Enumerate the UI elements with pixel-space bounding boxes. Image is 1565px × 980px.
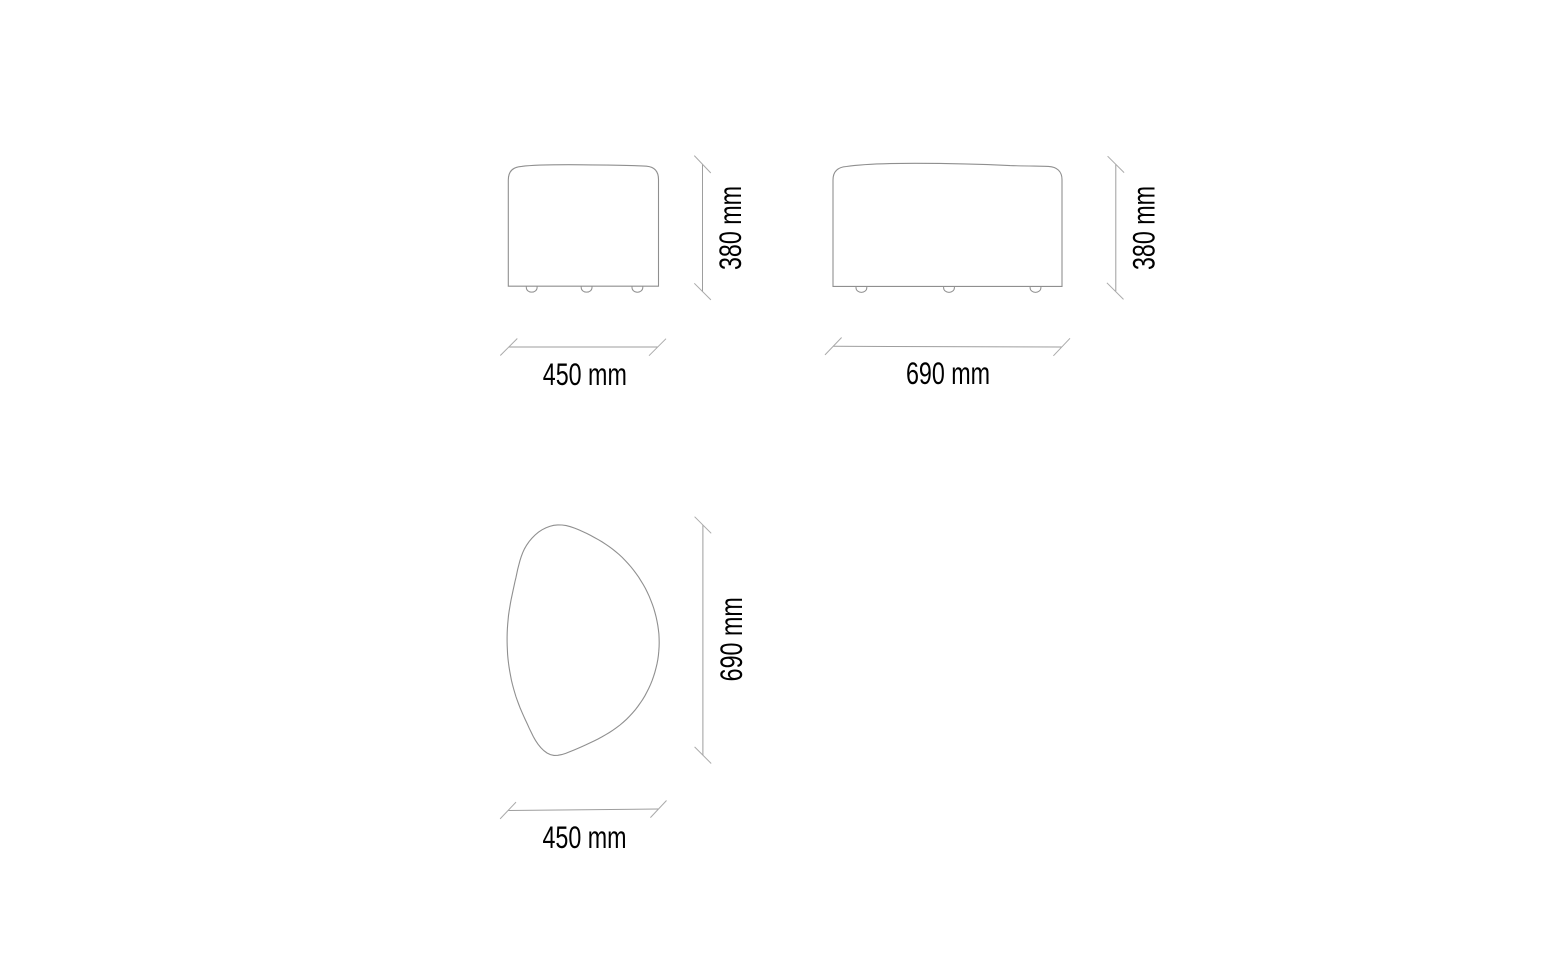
svg-text:450 mm: 450 mm bbox=[543, 357, 627, 392]
svg-text:380 mm: 380 mm bbox=[1126, 186, 1161, 270]
svg-text:690 mm: 690 mm bbox=[906, 356, 990, 391]
svg-text:690 mm: 690 mm bbox=[714, 597, 749, 681]
svg-text:450 mm: 450 mm bbox=[542, 820, 626, 855]
svg-text:380 mm: 380 mm bbox=[713, 186, 748, 270]
